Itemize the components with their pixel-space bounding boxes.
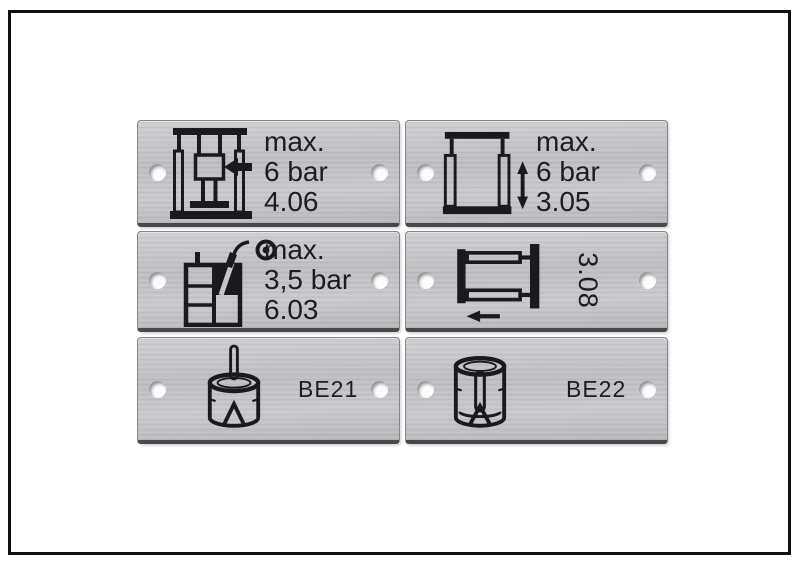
tank-hose-nozzle-icon xyxy=(182,239,277,327)
press-frame-vertical-arrow-icon xyxy=(436,129,531,219)
pressure-line: 6.03 xyxy=(264,295,351,325)
pressure-label: max. 6 bar 4.06 xyxy=(264,127,328,217)
pressure-line: 3,5 bar xyxy=(264,265,351,295)
mounting-hole-left xyxy=(417,164,434,181)
part-number-label: BE21 xyxy=(298,338,358,440)
mounting-hole-right xyxy=(639,381,656,398)
part-number-label: BE22 xyxy=(566,338,626,440)
label-plate-3: max. 3,5 bar 6.03 xyxy=(137,231,400,332)
part-number: BE22 xyxy=(566,376,626,403)
mounting-hole-right xyxy=(371,164,388,181)
catalog-photo: max. 6 bar 4.06 max. 6 bar 3.05 xyxy=(0,0,800,565)
mounting-hole-right xyxy=(371,272,388,289)
mounting-hole-right xyxy=(639,272,656,289)
pressure-line: max. xyxy=(264,235,351,265)
mounting-hole-right xyxy=(371,381,388,398)
pressure-line: 6 bar xyxy=(264,157,328,187)
frame-left-arrow-icon xyxy=(454,244,554,323)
label-plate-2: max. 6 bar 3.05 xyxy=(405,120,668,227)
pressure-line: max. xyxy=(536,127,600,157)
mounting-hole-left xyxy=(149,164,166,181)
mounting-hole-left xyxy=(417,272,434,289)
pressure-line: 4.06 xyxy=(264,187,328,217)
rotated-label: 3.08 xyxy=(572,252,603,309)
pressure-line: max. xyxy=(264,127,328,157)
mounting-hole-right xyxy=(639,164,656,181)
label-plate-6: BE22 xyxy=(405,337,668,444)
pressure-line: 3.05 xyxy=(536,187,600,217)
mounting-hole-left xyxy=(149,381,166,398)
mounting-hole-left xyxy=(149,272,166,289)
rotated-label-wrap: 3.08 xyxy=(558,232,616,328)
press-ram-left-arrow-icon xyxy=(168,126,254,222)
cylinder-top-pin-icon xyxy=(204,344,264,439)
label-plate-5: BE21 xyxy=(137,337,400,444)
pressure-label: max. 6 bar 3.05 xyxy=(536,127,600,217)
pressure-line: 6 bar xyxy=(536,157,600,187)
label-plate-1: max. 6 bar 4.06 xyxy=(137,120,400,227)
mounting-hole-left xyxy=(417,381,434,398)
sleeve-inner-pin-icon xyxy=(450,348,510,433)
label-plate-4: 3.08 xyxy=(405,231,668,332)
part-number: BE21 xyxy=(298,376,358,403)
pressure-label: max. 3,5 bar 6.03 xyxy=(264,235,351,325)
